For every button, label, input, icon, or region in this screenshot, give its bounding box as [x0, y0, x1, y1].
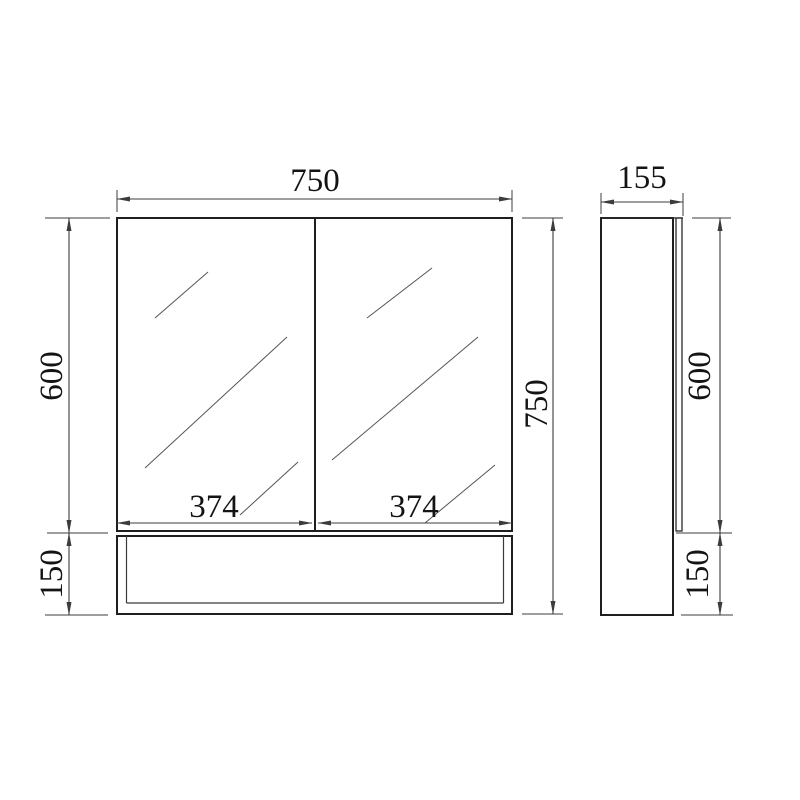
glass-reflection-line — [155, 272, 208, 318]
dim-label-right-door-width: 374 — [389, 489, 439, 525]
cabinet-body-outline — [601, 218, 673, 615]
front-view — [117, 218, 512, 614]
glass-reflection-line — [145, 337, 287, 468]
glass-reflection-line — [240, 462, 298, 515]
dim-label-side-mirror-height: 600 — [682, 351, 718, 401]
drawing-canvas: 750 600 150 750 374 374 155 600 — [0, 0, 800, 800]
side-view — [601, 218, 683, 615]
dim-label-depth: 155 — [617, 160, 667, 196]
open-shelf-outline — [117, 536, 512, 614]
dim-label-overall-height: 750 — [519, 379, 555, 429]
dim-label-mirror-height: 600 — [34, 351, 70, 401]
glass-reflection-line — [367, 268, 432, 318]
dim-label-overall-width: 750 — [290, 163, 340, 199]
dim-label-shelf-height: 150 — [34, 549, 70, 599]
dim-label-left-door-width: 374 — [189, 489, 239, 525]
dimensions-front: 750 600 150 750 374 374 — [34, 163, 563, 615]
dim-label-side-shelf-height: 150 — [680, 549, 716, 599]
dimensions-side: 155 600 150 — [601, 160, 733, 615]
dimension-drawing: 750 600 150 750 374 374 155 600 — [0, 0, 800, 800]
glass-reflection-line — [332, 337, 478, 460]
